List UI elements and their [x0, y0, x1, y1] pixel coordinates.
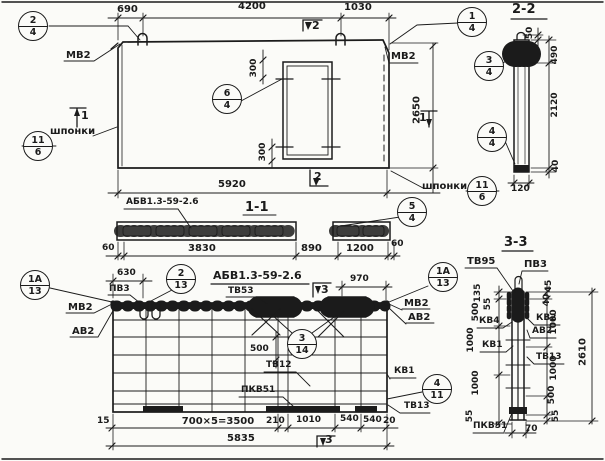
- drawing-linework: [0, 0, 605, 461]
- dim-55-bottom: 55: [466, 410, 476, 423]
- dim-1000-right-1: 1000: [550, 309, 560, 334]
- dim-55-right: 55: [552, 410, 562, 423]
- dim-2120: 2120: [551, 92, 561, 117]
- plan-leaders: [22, 23, 515, 226]
- reinforcement-title: АБВ1.3-59-2.6: [213, 270, 302, 282]
- dim-60-right: 60: [391, 240, 404, 250]
- callout-1a-left: 1А13: [20, 270, 50, 300]
- callout-6-4: 64: [212, 84, 242, 114]
- label-keys-right: шпонки: [422, 181, 467, 192]
- section-marker-1-left: 1: [81, 110, 89, 122]
- dim-1010: 1010: [296, 416, 321, 426]
- label-tv12: ТВ12: [266, 361, 292, 371]
- dim-300-bottom: 300: [259, 143, 269, 162]
- label-kv4: КВ4: [479, 317, 499, 327]
- dim-bays: 700×5=3500: [163, 416, 273, 427]
- dim-total-5835: 5835: [227, 433, 255, 444]
- dim-690: 690: [117, 4, 138, 15]
- callout-2-4: 24: [18, 11, 48, 41]
- drawing-sheet: 690 4200 1030 5920 2650 300 300 МВ2 МВ2 …: [0, 0, 605, 461]
- section33-linework: [502, 251, 533, 420]
- label-kv1: КВ1: [394, 367, 414, 377]
- label-mv2-left: МВ2: [68, 302, 93, 313]
- dim-45: 45: [545, 280, 555, 293]
- callout-5-4: 54: [397, 197, 427, 227]
- section33-title: 3-3: [504, 236, 528, 250]
- dim-1000-left-1: 1000: [467, 327, 477, 352]
- section-marker-2-bottom: 2: [314, 171, 322, 183]
- dim-540-b: 540: [363, 416, 382, 426]
- dim-1000-right-2: 1000: [550, 355, 560, 380]
- dim-540-a: 540: [340, 415, 359, 425]
- label-pv3-33: ПВ3: [524, 259, 547, 270]
- dim-4200: 4200: [238, 1, 266, 12]
- label-av2-right: АВ2: [408, 312, 430, 323]
- dim-60-left: 60: [102, 244, 115, 254]
- section22-title: 2-2: [512, 3, 536, 17]
- dim-630: 630: [117, 269, 136, 279]
- dim-55-top: 55: [484, 298, 494, 311]
- dim-1200: 1200: [346, 243, 374, 254]
- dim-890: 890: [301, 243, 322, 254]
- dim-40: 40: [552, 160, 562, 173]
- dim-15: 15: [97, 417, 110, 427]
- label-pv3: ПВ3: [109, 285, 130, 295]
- section-marker-3-bottom: 3: [325, 434, 333, 446]
- dim-300-top: 300: [250, 59, 260, 78]
- dim-40: 40: [543, 294, 553, 307]
- dim-970: 970: [350, 275, 369, 285]
- callout-keys-left: 116: [23, 131, 53, 161]
- callout-4-4: 44: [477, 122, 507, 152]
- label-mv2-left: МВ2: [66, 50, 91, 61]
- dim-70: 70: [525, 425, 538, 435]
- section11-mark-label: АБВ1.3-59-2.6: [126, 198, 199, 208]
- callout-3-14: 314: [287, 329, 317, 359]
- label-mv2-right: МВ2: [404, 298, 429, 309]
- section-marker-2-top: 2: [312, 20, 320, 32]
- label-keys-left: шпонки: [50, 126, 95, 137]
- dim-50: 50: [526, 27, 536, 40]
- dim-210: 210: [266, 417, 285, 427]
- dim-500-right: 500: [548, 386, 558, 405]
- label-tv13: ТВ13: [404, 402, 430, 412]
- dim-490: 490: [551, 46, 561, 65]
- plan-outline: [111, 34, 389, 169]
- dim-120: 120: [511, 185, 530, 195]
- label-pkv51: ПКВ51: [241, 386, 275, 396]
- section22-linework: [508, 19, 556, 188]
- label-kv1-33: КВ1: [482, 341, 502, 351]
- callout-2-13: 213: [166, 264, 196, 294]
- dim-500-left: 500: [472, 303, 482, 322]
- dim-5920: 5920: [218, 179, 246, 190]
- callout-4-11: 411: [422, 374, 452, 404]
- dim-total-2610: 2610: [578, 338, 589, 366]
- callout-1-4: 14: [457, 7, 487, 37]
- label-mv2-right: МВ2: [391, 51, 416, 62]
- label-av2-left: АВ2: [72, 326, 94, 337]
- dim-500: 500: [250, 345, 269, 355]
- section-marker-3-top: 3: [321, 284, 329, 296]
- label-pkv51-33: ПКВ51: [473, 422, 507, 432]
- section-marker-1-right: 1: [419, 112, 427, 124]
- dim-1030: 1030: [344, 2, 372, 13]
- callout-keys-right: 116: [467, 176, 497, 206]
- dim-1000-left-2: 1000: [472, 370, 482, 395]
- section11-title: 1-1: [245, 201, 269, 215]
- callout-1a-right: 1А13: [428, 262, 458, 292]
- label-tv53: ТВ53: [228, 287, 254, 297]
- callout-3-4: 34: [474, 51, 504, 81]
- dim-3830: 3830: [188, 243, 216, 254]
- label-tv95: ТВ95: [467, 256, 495, 267]
- dim-20: 20: [383, 417, 396, 427]
- plan-section-marks: [70, 20, 437, 186]
